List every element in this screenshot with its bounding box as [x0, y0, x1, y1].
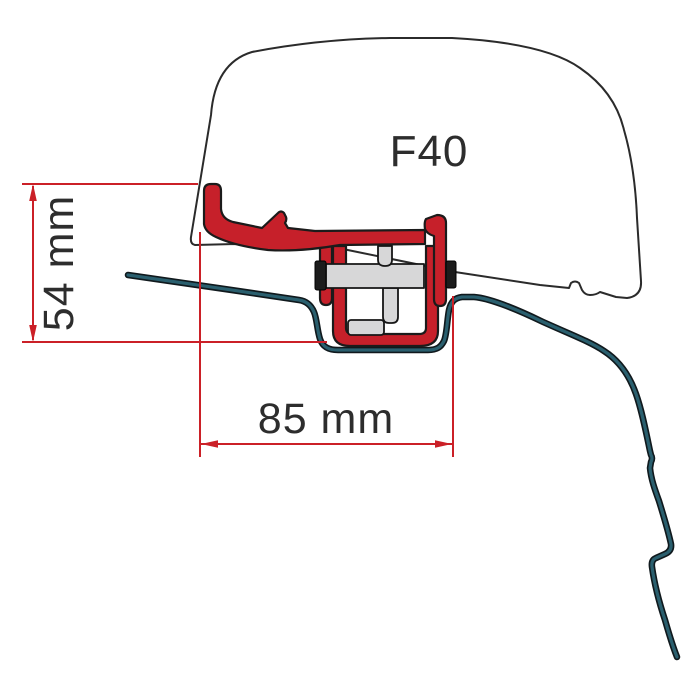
clamp-pad-right — [446, 261, 456, 288]
arrowhead-left-icon — [201, 440, 218, 447]
hardware-crossbar — [326, 264, 424, 288]
diagram-page: F40 — [0, 0, 700, 700]
vehicle-roof-profile — [128, 275, 677, 657]
hardware-foot-block — [348, 320, 384, 335]
awning-case: F40 — [191, 38, 641, 298]
arrowhead-right-icon — [435, 440, 452, 447]
roof-profile-line — [128, 275, 677, 657]
hardware-lower-bolt — [383, 288, 398, 323]
product-label-f40: F40 — [390, 127, 469, 176]
clamp-pad-left — [315, 261, 326, 290]
dimension-54mm-label: 54 mm — [35, 195, 83, 331]
adapter-cross-section-diagram: F40 — [0, 0, 700, 700]
dimension-85mm-label: 85 mm — [258, 395, 394, 443]
hardware-top-bolt — [378, 246, 392, 266]
roof-profile-outline — [128, 275, 677, 657]
